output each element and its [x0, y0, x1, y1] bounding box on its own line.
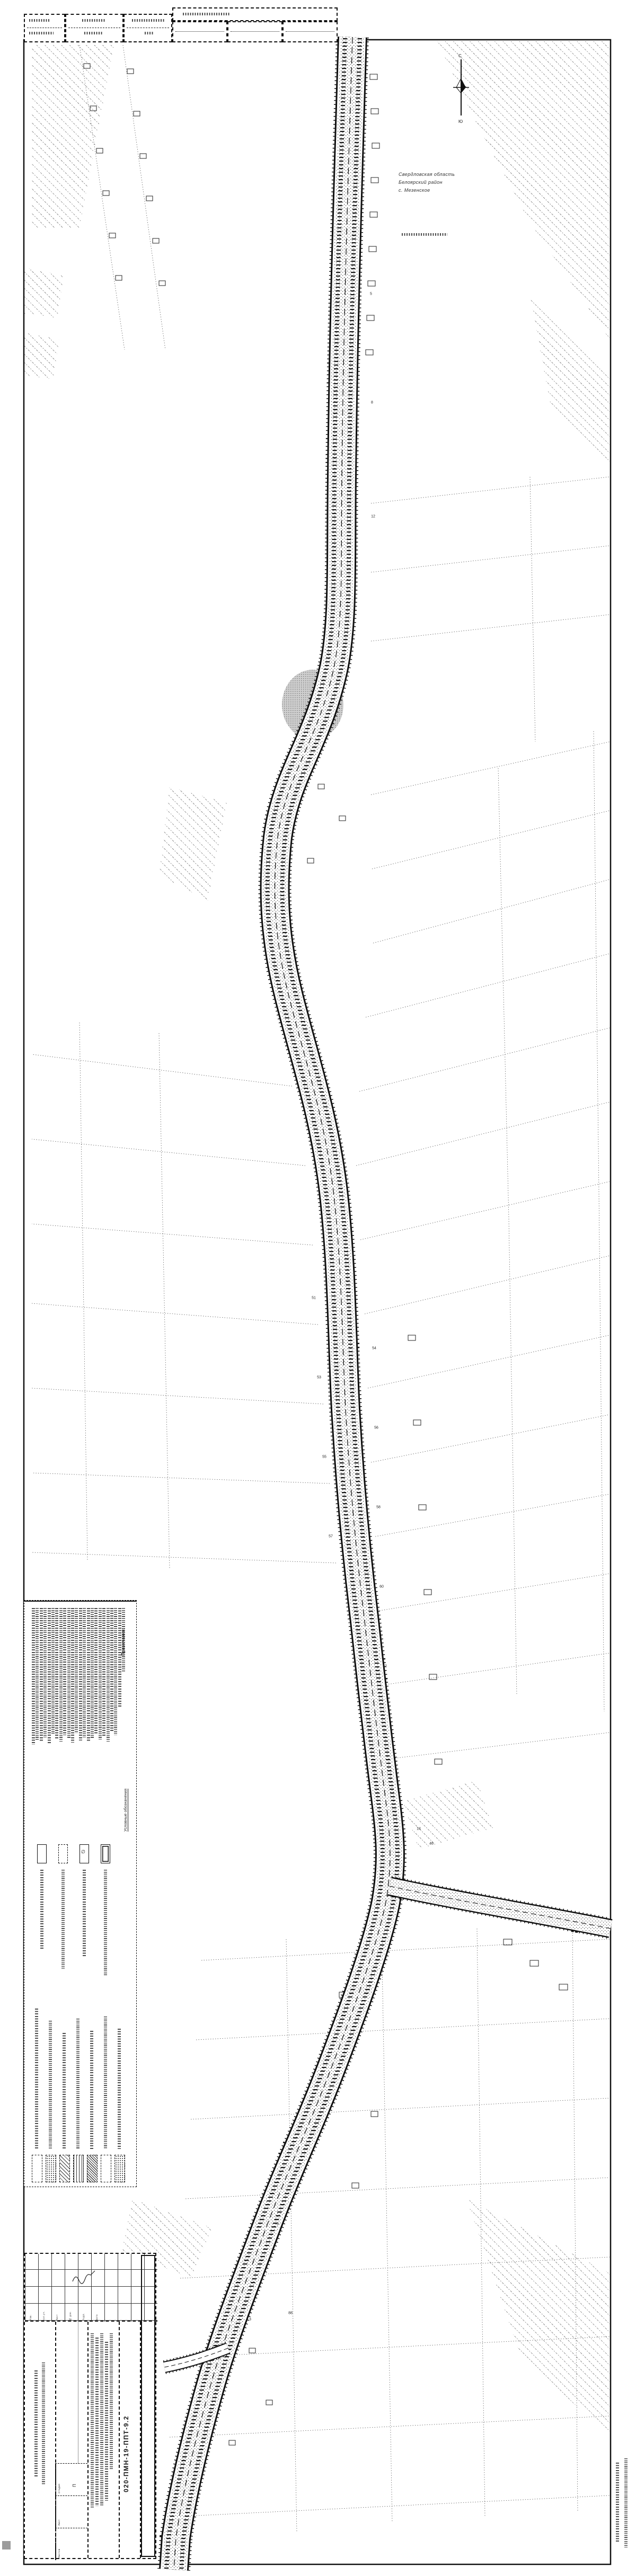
- map-label: 5: [370, 292, 372, 296]
- stage-cell: Листов: [55, 2528, 87, 2560]
- legend-label: [76, 2019, 79, 2149]
- legend-label: [83, 1870, 86, 1957]
- top-table-cell: [24, 14, 65, 42]
- notes-line: [36, 1608, 39, 1740]
- map-label: 60: [379, 1585, 384, 1589]
- notes-line: [67, 1608, 70, 1738]
- location-label: Свердловская область Белоярский район с.…: [399, 171, 489, 194]
- legend-swatch-plain: [37, 1844, 47, 1863]
- notes-line: [110, 1608, 113, 1732]
- map-label: 12: [371, 515, 375, 519]
- notes-line: [63, 1608, 66, 1735]
- legend-swatch-glyph: [79, 1844, 89, 1863]
- legend-label: [49, 2021, 52, 2149]
- top-reference-table: [24, 7, 338, 42]
- map-label: 56: [374, 1426, 378, 1430]
- stage-cell: СтадияП: [55, 2463, 87, 2495]
- legend-swatch-dots: [114, 2155, 125, 2182]
- legend-swatch-dense-hatch: [87, 2155, 98, 2182]
- map-label: 14: [417, 1827, 421, 1831]
- legend-swatch-plain: [101, 2155, 111, 2182]
- notes-line: [102, 1608, 105, 1736]
- notes-line: [83, 1608, 86, 1737]
- map-label: 8: [371, 401, 373, 405]
- map-label: 53: [317, 1376, 321, 1380]
- notes-line: [32, 1608, 35, 1745]
- north-letter-n: С: [458, 54, 462, 58]
- road-corridor: [164, 37, 611, 2570]
- notes-line: [51, 1608, 55, 1734]
- top-table-cell: [282, 21, 338, 42]
- legend-label: [104, 1870, 107, 1976]
- stage-label: Стадия: [58, 2467, 60, 2493]
- revision-grid: Изм.Кол.уч.Лист№ док.Подп.Дата: [25, 2254, 157, 2322]
- top-table-cell: [172, 21, 227, 42]
- map-label: 55: [322, 1455, 326, 1459]
- legend-label: [104, 2017, 107, 2149]
- stage-value: П: [72, 2474, 77, 2487]
- map-canvas: С Ю: [0, 0, 636, 2576]
- top-table-cell: [227, 21, 282, 42]
- rev-header: Лист: [56, 2306, 58, 2321]
- rev-header: Кол.уч.: [42, 2306, 45, 2321]
- document-designation: 020-ПМН-19-ППТ-9.2: [122, 2333, 130, 2492]
- map-label: 7: [297, 2148, 299, 2152]
- faint-label: [402, 233, 447, 236]
- notes-line: [43, 1608, 47, 1737]
- stage-cell: Лист: [55, 2495, 87, 2528]
- north-letter-s: Ю: [458, 119, 463, 124]
- notes-legend-panel: Примечания: Условные обозначения: [24, 1600, 137, 2187]
- notes-line: [122, 1608, 125, 1672]
- map-label: 88: [288, 2312, 293, 2315]
- notes-line: [99, 1608, 102, 1739]
- top-table-cell: [123, 14, 172, 42]
- top-table-header: [172, 7, 338, 21]
- notes-line: [94, 1608, 98, 1734]
- legend-label: [40, 1870, 43, 1949]
- rev-header: № док.: [69, 2306, 72, 2321]
- legend-label: [118, 2029, 121, 2149]
- legend-swatch-dots: [46, 2155, 56, 2182]
- location-line-1: Свердловская область: [399, 171, 489, 179]
- legend-label: [63, 2033, 66, 2149]
- location-line-3: с. Мезенское: [399, 186, 489, 194]
- map-label: 62: [383, 1665, 387, 1668]
- signature-scribble: [72, 2270, 96, 2286]
- map-label: 58: [376, 1506, 381, 1509]
- notes-line: [114, 1608, 117, 1735]
- map-label: 51: [312, 1296, 316, 1300]
- legend-label: [90, 2031, 93, 2149]
- notes-line: [59, 1608, 63, 1742]
- notes-line: [118, 1608, 121, 1708]
- rev-header: Подп.: [82, 2306, 85, 2321]
- legend-swatch-hatch: [59, 2155, 70, 2182]
- legend-title: Условные обозначения: [123, 1757, 128, 1832]
- location-line-2: Белоярский район: [399, 179, 489, 186]
- legend-swatch-plain: [32, 2155, 42, 2182]
- drawing-sheet: С Ю 5812144688545658606251535557793: [0, 0, 636, 2576]
- notes-line: [87, 1608, 90, 1742]
- stage-label: Лист: [58, 2499, 60, 2526]
- legend-label: [35, 2009, 38, 2149]
- notes-line: [55, 1608, 58, 1739]
- map-label: 9: [277, 2223, 279, 2226]
- format-column: [141, 2255, 155, 2557]
- notes-line: [40, 1608, 43, 1742]
- map-label: 46: [429, 1842, 434, 1846]
- title-block: Изм.Кол.уч.Лист№ док.Подп.Дата СтадияПЛи…: [24, 2253, 156, 2559]
- rev-header: Изм.: [29, 2306, 32, 2321]
- notes-line: [107, 1608, 110, 1742]
- notes-line: [71, 1608, 74, 1743]
- stage-label: Листов: [58, 2531, 60, 2558]
- legend-swatch-dash-bracket: [58, 1844, 68, 1863]
- map-label: 3: [249, 2318, 251, 2322]
- legend-label: [61, 1870, 65, 1969]
- map-label: 57: [329, 1535, 333, 1539]
- legend-swatch-vlines: [73, 2155, 84, 2182]
- scan-artifact: [2, 2541, 11, 2550]
- notes-line: [79, 1608, 82, 1740]
- fence-line-right: [181, 37, 397, 2570]
- notes-line: [48, 1608, 51, 1743]
- map-label: 54: [372, 1347, 376, 1351]
- rev-header: Дата: [95, 2306, 98, 2321]
- notes-line: [75, 1608, 78, 1733]
- margin-note: [613, 2453, 635, 2559]
- top-table-cell: [65, 14, 123, 42]
- legend-swatch-double: [101, 1844, 110, 1863]
- notes-line: [91, 1608, 94, 1738]
